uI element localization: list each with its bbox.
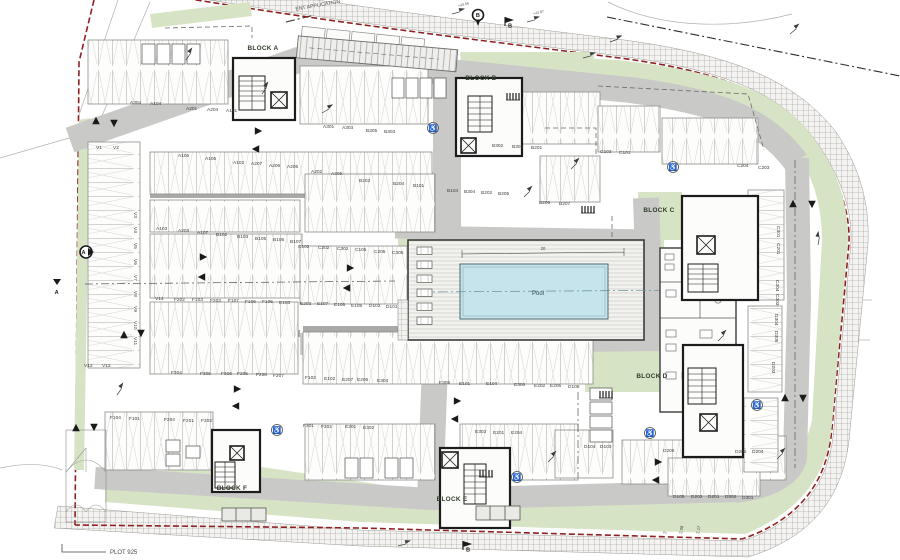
parking-space-label: C205	[374, 249, 386, 255]
parking-space-label: V11	[132, 337, 138, 346]
parking-space-label: V10	[132, 321, 138, 330]
parking-space-label: A202	[311, 169, 323, 175]
parking-space-label: F303	[201, 418, 212, 424]
site-plan-drawing: Pool 20	[0, 0, 900, 560]
parking-space-label: E101	[459, 381, 471, 387]
parking-space-label: D102	[369, 303, 381, 309]
parking-space-label: D304	[773, 314, 779, 326]
parking-space-label: A303	[342, 125, 354, 131]
parking-space-label: F202	[174, 297, 185, 303]
parking-space-label: B206	[539, 200, 551, 206]
parking-space-label: D202	[691, 494, 703, 500]
parking-space-label: F305	[200, 371, 211, 377]
block-label: BLOCK B	[465, 75, 496, 82]
parking-space-label: D104	[584, 444, 596, 450]
parking-space-label: V3	[132, 212, 138, 218]
sun-lounger	[417, 289, 432, 297]
block-label: BLOCK A	[248, 45, 279, 52]
svg-text:B: B	[476, 13, 480, 19]
parking-space-label: V5	[132, 243, 138, 249]
block-d-core	[683, 345, 743, 457]
parking-space-label: B204	[393, 181, 405, 187]
parking-space-label: C304	[774, 280, 780, 292]
parking-space-label: F104	[110, 415, 121, 421]
parking-space-label: A305	[331, 171, 343, 177]
parking-space-label: E205	[550, 383, 562, 389]
parking-space-label: V13	[102, 363, 111, 369]
parking-space-label: B305	[366, 128, 378, 134]
parking-space-label: B207	[559, 201, 571, 207]
parking-space-label: F101	[129, 416, 140, 422]
parking-row	[150, 234, 302, 298]
parking-space-label: E106	[334, 302, 346, 308]
parking-space-label: E202	[534, 383, 546, 389]
parking-space-label: A203	[178, 228, 190, 234]
parking-space-label: D203	[770, 362, 776, 374]
parking-space-label: A102	[233, 160, 245, 166]
parking-space-label: B104	[447, 188, 459, 194]
sun-lounger	[417, 317, 432, 325]
parking-space-label: D103	[600, 444, 612, 450]
sun-lounger	[417, 303, 432, 311]
parking-space-label: B301	[512, 144, 524, 150]
parking-space-label: V12	[84, 363, 93, 369]
parking-space-label: C204	[737, 163, 749, 169]
parking-space-label: D201	[708, 494, 720, 500]
parking-row	[105, 412, 213, 470]
svg-text:A: A	[82, 250, 86, 256]
parking-space-label: A205	[287, 164, 299, 170]
parking-space-label: A207	[251, 161, 263, 167]
parking-space-label: E107	[317, 301, 329, 307]
pool-label: Pool	[532, 291, 544, 297]
parking-space-label: A204	[207, 107, 219, 113]
parking-space-label: D204	[752, 449, 764, 455]
parking-space-label: B102	[216, 232, 228, 238]
parking-space-label: B101	[413, 183, 425, 189]
block-a-core	[233, 58, 295, 120]
parking-space-label: V6	[132, 259, 138, 265]
parking-space-label: F302	[321, 424, 332, 430]
parking-space-label: D305	[773, 331, 779, 343]
parking-space-label: E102	[324, 376, 336, 382]
parking-space-label: D206	[663, 448, 675, 454]
parking-space-label: F105	[262, 299, 273, 305]
parking-space-label: F102	[305, 375, 316, 381]
parking-space-label: A105	[178, 153, 190, 159]
svg-text:A: A	[55, 290, 59, 296]
parking-row	[150, 302, 298, 374]
parking-space-label: B106	[273, 237, 285, 243]
svg-text:♿: ♿	[753, 401, 762, 410]
parking-space-label: A301	[323, 124, 335, 130]
parking-space-label: E306	[514, 382, 526, 388]
parking-row	[540, 156, 600, 202]
block-label: BLOCK C	[643, 207, 674, 214]
parking-row	[598, 106, 660, 152]
parking-space-label: D108	[568, 384, 580, 390]
parking-space-label: E303	[475, 429, 487, 435]
parking-space-label: B201	[531, 145, 543, 151]
block-label: BLOCK F	[217, 485, 248, 492]
sun-lounger	[417, 275, 432, 283]
parking-space-label: E203	[300, 301, 312, 307]
parking-space-label: C302	[337, 246, 349, 252]
parking-space-label: C102	[298, 244, 310, 250]
svg-text:♿: ♿	[273, 426, 282, 435]
svg-text:♿: ♿	[669, 163, 678, 172]
parking-space-label: B103	[237, 234, 249, 240]
parking-space-label: E207	[342, 377, 354, 383]
parking-space-label: B105	[255, 236, 267, 242]
parking-space-label: V7	[132, 275, 138, 281]
parking-space-label: B203	[359, 178, 371, 184]
parking-space-label: V14	[155, 296, 164, 302]
parking-space-label: E304	[377, 378, 389, 384]
parking-space-label: E103	[279, 300, 291, 306]
parking-space-label: C101	[619, 150, 631, 156]
svg-text:B: B	[508, 24, 512, 30]
parking-space-label: A107	[197, 230, 209, 236]
parking-space-label: C202	[318, 245, 330, 251]
parking-space-label: A104	[150, 101, 162, 107]
svg-text:♿: ♿	[646, 429, 655, 438]
parking-space-label: V4	[132, 227, 138, 233]
site-plan-svg: Pool 20	[0, 0, 900, 560]
parking-space-label: A304	[130, 100, 142, 106]
parking-space-label: A206	[269, 163, 281, 169]
parking-space-label: E301	[345, 424, 357, 430]
parking-space-label: B302	[492, 143, 504, 149]
parking-space-label: A103	[156, 226, 168, 232]
parking-space-label: F207	[273, 373, 284, 379]
parking-space-label: F103	[192, 297, 203, 303]
parking-space-label: E204	[511, 430, 523, 436]
parking-space-label: E305	[439, 380, 451, 386]
parking-space-label: F204	[164, 417, 175, 423]
parking-space-label: C305	[392, 250, 404, 256]
parking-space-label: F106	[245, 299, 256, 305]
parking-space-label: A106	[205, 156, 217, 162]
parking-space-label: D101	[386, 304, 398, 310]
parking-space-label: D301	[742, 495, 754, 501]
parking-row	[150, 200, 300, 232]
parking-space-label: E104	[486, 381, 498, 387]
svg-text:♿: ♿	[429, 124, 438, 133]
sun-lounger	[417, 261, 432, 269]
parking-space-label: E201	[493, 430, 505, 436]
block-f-core	[212, 430, 260, 492]
block-label: BLOCK D	[636, 373, 667, 380]
parking-space-label: D205	[735, 449, 747, 455]
parking-space-label: V2	[113, 145, 119, 151]
parking-space-label: F306	[221, 371, 232, 377]
parking-space-label: F301	[303, 423, 314, 429]
parking-space-label: C303	[774, 294, 780, 306]
planter	[398, 300, 408, 340]
block-c-core	[682, 196, 758, 300]
parking-space-label: E302	[363, 425, 375, 431]
parking-space-label: F203	[210, 298, 221, 304]
parking-space-label: F201	[183, 418, 194, 424]
parking-space-label: F205	[237, 371, 248, 377]
parking-space-label: V9	[132, 306, 138, 312]
parking-space-label: E105	[351, 303, 363, 309]
parking-space-label: D105	[673, 494, 685, 500]
parking-row	[662, 118, 758, 164]
parking-space-label: B303	[384, 129, 396, 135]
parking-space-label: V8	[132, 291, 138, 297]
parking-space-label: B202	[481, 190, 493, 196]
parking-space-label: E206	[357, 377, 369, 383]
sun-lounger	[417, 247, 432, 255]
parking-space-label: C105	[355, 247, 367, 253]
block-label: BLOCK E	[437, 496, 468, 503]
parking-space-label: V1	[96, 145, 102, 151]
parking-space-label: B304	[464, 189, 476, 195]
parking-space-label: F206	[256, 372, 267, 378]
parking-space-label: C201	[775, 243, 781, 255]
parking-space-label: F304	[171, 370, 182, 376]
parking-space-label: A201	[186, 106, 198, 112]
svg-text:B: B	[466, 548, 470, 554]
parking-space-label: D302	[725, 494, 737, 500]
pool-dimension-text: 20	[541, 246, 546, 251]
visitor-parking-column	[88, 142, 140, 368]
parking-space-label: A101	[226, 108, 238, 114]
parking-space-label: C301	[775, 226, 781, 238]
parking-space-label: C203	[758, 165, 770, 171]
parking-space-label: F107	[228, 298, 239, 304]
svg-text:♿: ♿	[513, 473, 522, 482]
plot-label: PLOT 925	[110, 550, 138, 556]
parking-space-label: B205	[498, 191, 510, 197]
parking-space-label: C103	[600, 149, 612, 155]
